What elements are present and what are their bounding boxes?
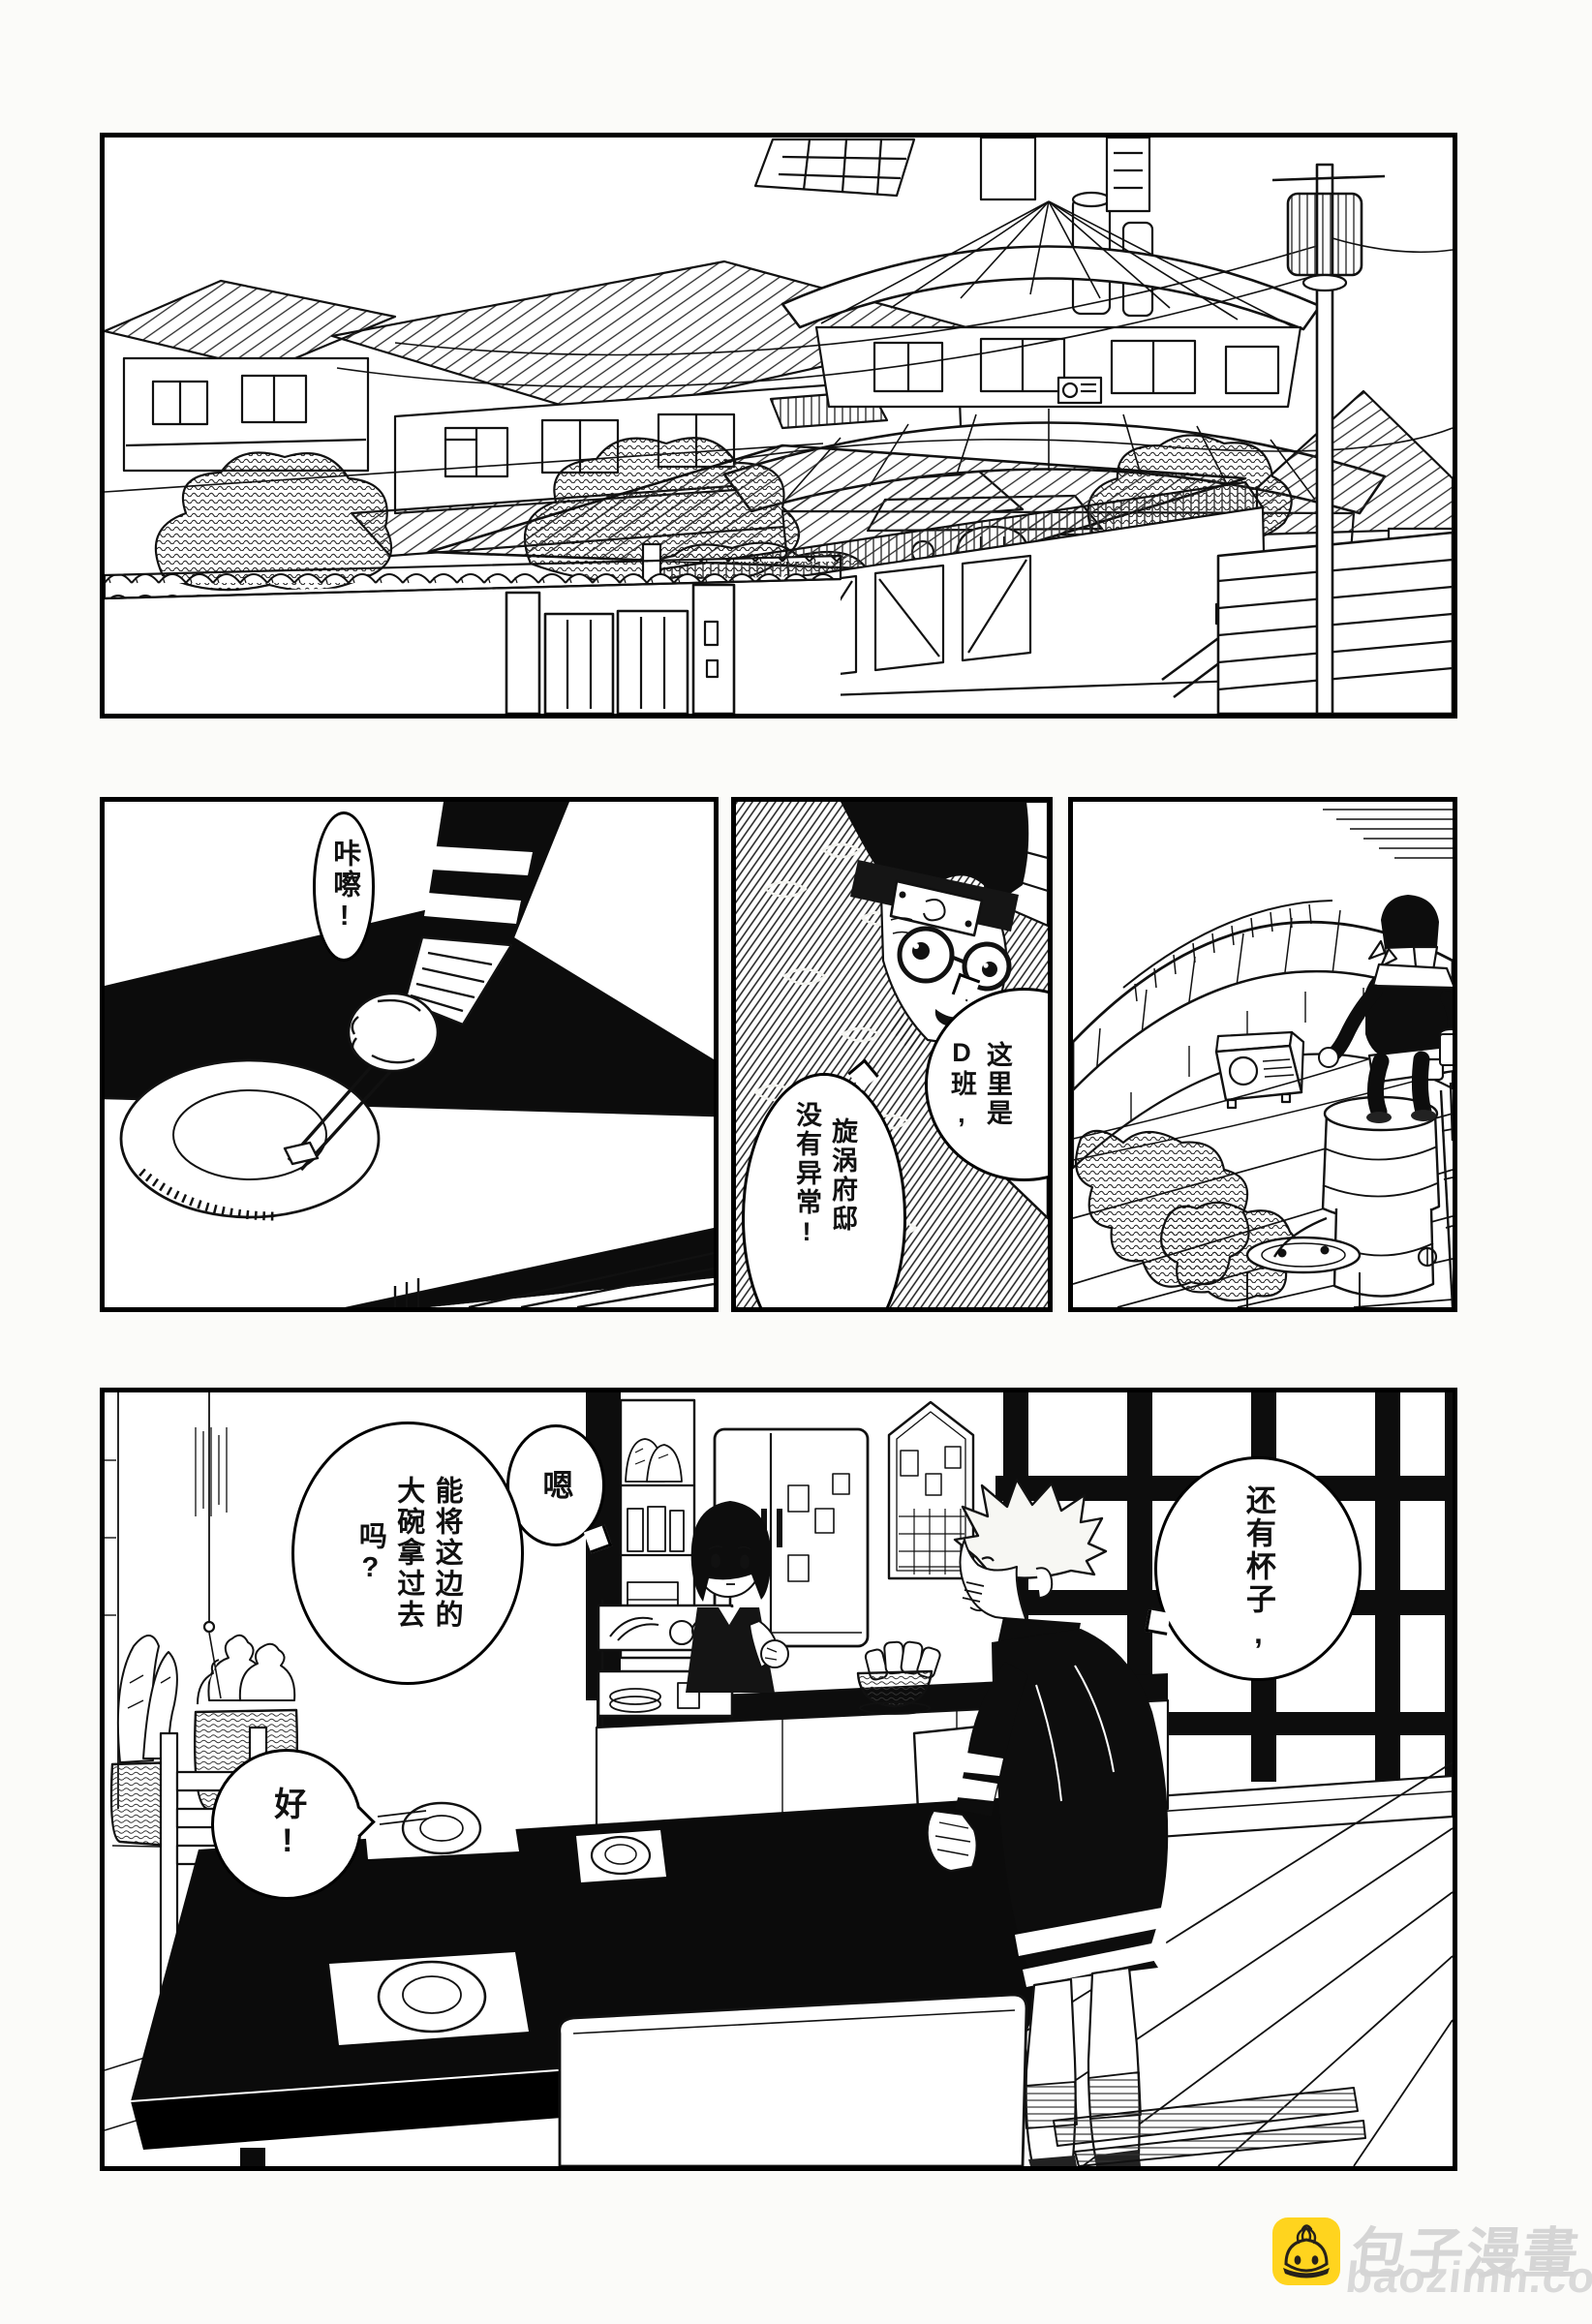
- manga-page: 咔嚓!: [0, 0, 1592, 2324]
- plate-artwork: [105, 802, 714, 1307]
- bubble-text: 这里是D班,: [941, 1038, 1017, 1131]
- watermark: 包子漫畫 baozimh.com: [1271, 2214, 1592, 2303]
- bubble-text: 能将这边的大碗拿过去吗?: [349, 1476, 467, 1631]
- bubble-text: 嗯: [533, 1469, 578, 1503]
- watermark-site-url: baozimh.com: [1343, 2252, 1592, 2303]
- panel-dining-room: 嗯 能将这边的大碗拿过去吗? 还有杯子, 好!: [100, 1388, 1457, 2171]
- cityscape-artwork: [105, 138, 1453, 714]
- bubble-tail: [1145, 1609, 1171, 1636]
- speech-bubble-cups: 还有杯子,: [1154, 1456, 1362, 1681]
- speech-bubble-ok: 好!: [211, 1749, 362, 1900]
- bubble-text: 咔嚓!: [322, 839, 364, 934]
- panel-team-d-report: 这里是D班, 旋涡府邸没有异常!: [731, 797, 1053, 1312]
- bubble-text: 还有杯子,: [1236, 1484, 1280, 1653]
- speech-bubble-request: 能将这边的大碗拿过去吗?: [291, 1422, 524, 1685]
- rooftop-artwork: [1073, 802, 1453, 1307]
- panel-cityscape: [100, 133, 1457, 719]
- bun-icon: [1272, 2217, 1340, 2285]
- speech-bubble-katcha: 咔嚓!: [313, 811, 375, 962]
- bubble-text: 好!: [262, 1787, 310, 1862]
- panel-plate-closeup: 咔嚓!: [100, 797, 719, 1312]
- panel-rooftop-lookout: [1068, 797, 1457, 1312]
- bubble-text: 旋涡府邸没有异常!: [786, 1101, 862, 1249]
